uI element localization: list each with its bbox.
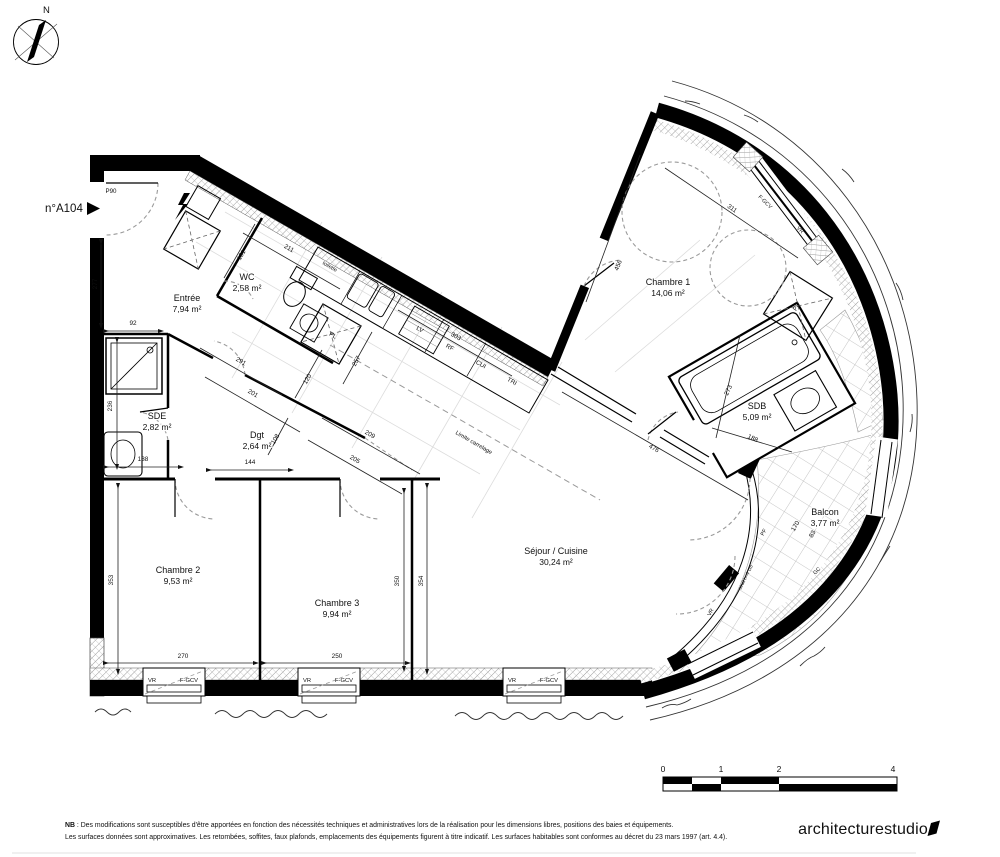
room-name: SDE [148,411,167,421]
sde-washbasin [104,432,142,476]
window [143,668,205,703]
room-name: Chambre 2 [156,565,201,575]
room-name: Chambre 3 [315,598,360,608]
room-area: 2,64 m² [243,441,272,451]
room-name: Séjour / Cuisine [524,546,588,556]
room-name: Dgt [250,430,265,440]
north-needle [27,20,46,62]
unit-label: n°A104 [45,203,83,215]
room-area: 14,06 m² [651,288,685,298]
room-name: SDB [748,401,767,411]
room-area: 30,24 m² [539,557,573,567]
annotation-label: PL [328,331,339,341]
scale-label-2: 2 [777,764,782,774]
scale-label-1: 1 [719,764,724,774]
furniture-circle [710,230,786,306]
dimension-label: 354 [418,575,425,586]
dimension-label: 250 [332,653,343,660]
annotation-label: VR [303,678,311,684]
window [503,668,565,703]
floor-plan-drawing: N n°A104 [0,0,1000,857]
annotation-label: VR [508,678,516,684]
north-compass: N [14,5,59,65]
dimension-label: 138 [138,456,149,463]
room-area: 7,94 m² [173,304,202,314]
dimension-label: 108 [270,433,282,446]
annotation-label: VR [707,608,716,618]
annotation-label: F-GCV [335,678,353,684]
studio-logo-mark-icon [928,821,941,837]
dimension-label: 131 [236,249,248,262]
dimension-label: 476 [647,443,660,455]
dimension-label: 236 [107,400,114,411]
dimension-label: 209 [363,429,376,441]
room-area: 2,58 m² [233,283,262,293]
annotation-label: VR [148,678,156,684]
dimension-label: 350 [394,575,401,586]
room-area: 9,94 m² [323,609,352,619]
room-area: 3,77 m² [811,518,840,528]
room-name: Entrée [174,293,201,303]
unit-label-group: n°A104 [45,202,100,215]
dimension-label: 270 [178,653,189,660]
dimension-label: 211 [283,243,296,254]
scale-label-4: 4 [891,764,896,774]
room-area: 5,09 m² [743,412,772,422]
note-line-2: Les surfaces données sont approximatives… [65,834,727,841]
scale-label-0: 0 [661,764,666,774]
studio-logo: architecturestudio [798,821,928,838]
north-label: N [43,5,50,16]
room-name: Chambre 1 [646,277,691,287]
dimension-label: 291 [234,356,247,368]
dimension-label: 311 [726,203,739,215]
annotation-label: P90 [105,188,117,195]
dimension-label: 144 [245,459,256,466]
scale-bar: 0 1 2 4 [661,764,897,791]
unit-pointer-icon [87,202,100,215]
annotation-label: F-GCV [540,678,558,684]
note-line-1: NB : Des modifications sont susceptibles… [65,822,673,829]
kitchen-counter [299,247,600,500]
room-name: Balcon [811,507,839,517]
room-area: 9,53 m² [164,576,193,586]
annotation-label: F-GCV [180,678,198,684]
annotation-label: Limite carrelage [454,430,493,456]
dimension-label: 277 [92,278,99,289]
dimension-label: 92 [129,320,137,327]
room-area: 2,82 m² [143,422,172,432]
dimension-label: 353 [108,574,115,585]
dimension-label: 257 [351,355,363,368]
door-leaves [106,183,676,517]
room-name: WC [240,272,255,282]
wc-washbasin [290,304,328,342]
dimension-label: 456 [613,259,624,272]
footer: NB : Des modifications sont susceptibles… [12,821,940,854]
dimension-label: 201 [246,388,259,400]
floor-plan-page: N n°A104 [0,0,1000,857]
bath-fixtures [104,266,328,476]
annotation-label: TRI [506,376,518,387]
window [298,668,360,703]
furniture-circle [622,162,722,262]
